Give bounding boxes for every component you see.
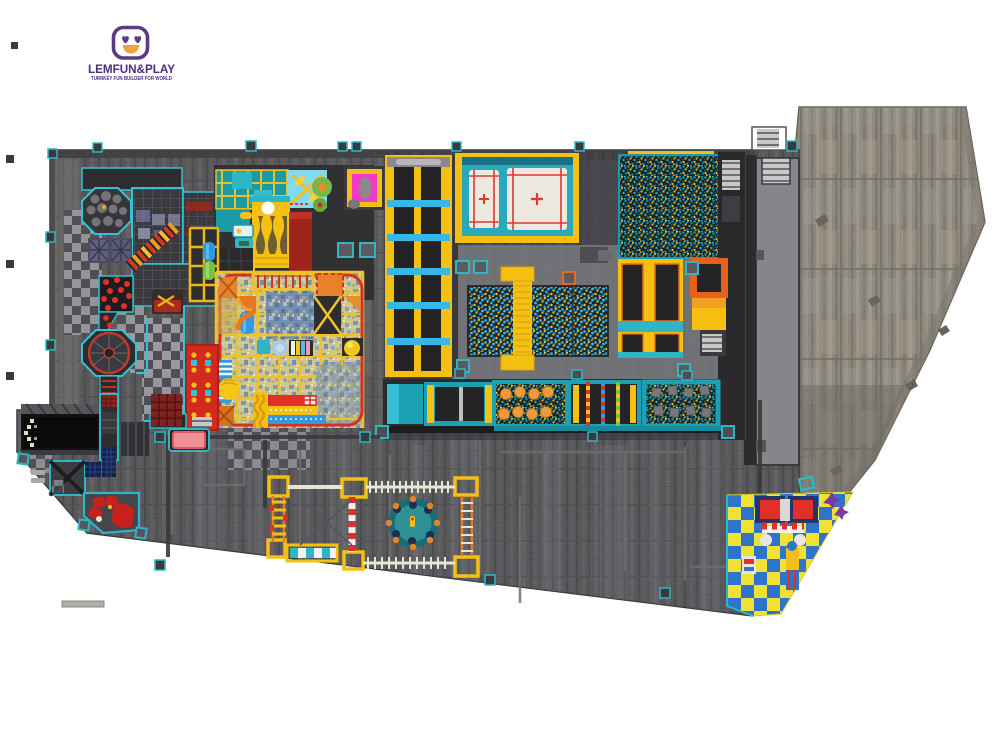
svg-text:LEMFUN&PLAY: LEMFUN&PLAY xyxy=(88,64,175,76)
svg-text:TURNKEY FUN BUILDER FOR WORLD: TURNKEY FUN BUILDER FOR WORLD xyxy=(91,76,172,82)
